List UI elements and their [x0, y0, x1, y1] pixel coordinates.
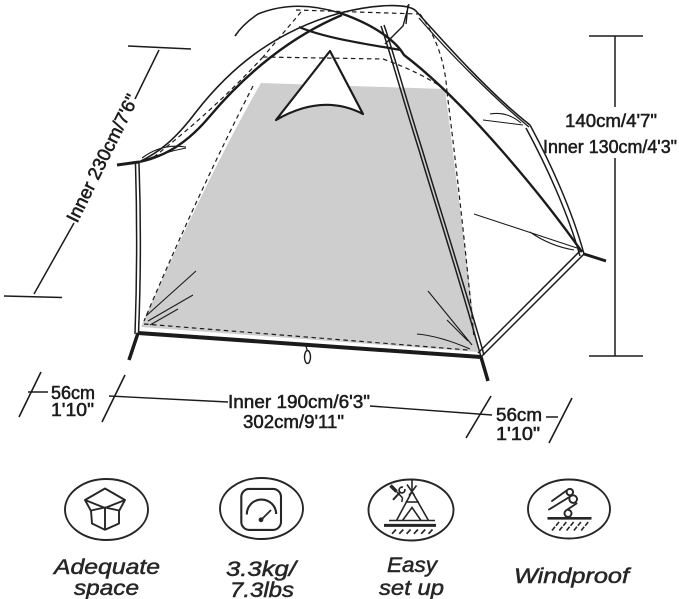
svg-text:1'10": 1'10" — [496, 423, 540, 444]
svg-text:7.3lbs: 7.3lbs — [230, 578, 294, 599]
svg-text:Windproof: Windproof — [514, 564, 631, 588]
svg-text:140cm/4'7": 140cm/4'7" — [565, 110, 657, 131]
svg-text:space: space — [74, 576, 139, 599]
svg-text:Easy: Easy — [387, 553, 438, 577]
svg-text:Inner 130cm/4'3": Inner 130cm/4'3" — [543, 136, 677, 157]
svg-text:set up: set up — [379, 576, 444, 599]
svg-text:1'10": 1'10" — [51, 399, 94, 420]
svg-text:302cm/9'11": 302cm/9'11" — [243, 411, 344, 432]
svg-text:Inner 190cm/6'3": Inner 190cm/6'3" — [228, 391, 370, 412]
svg-text:56cm: 56cm — [496, 404, 542, 425]
